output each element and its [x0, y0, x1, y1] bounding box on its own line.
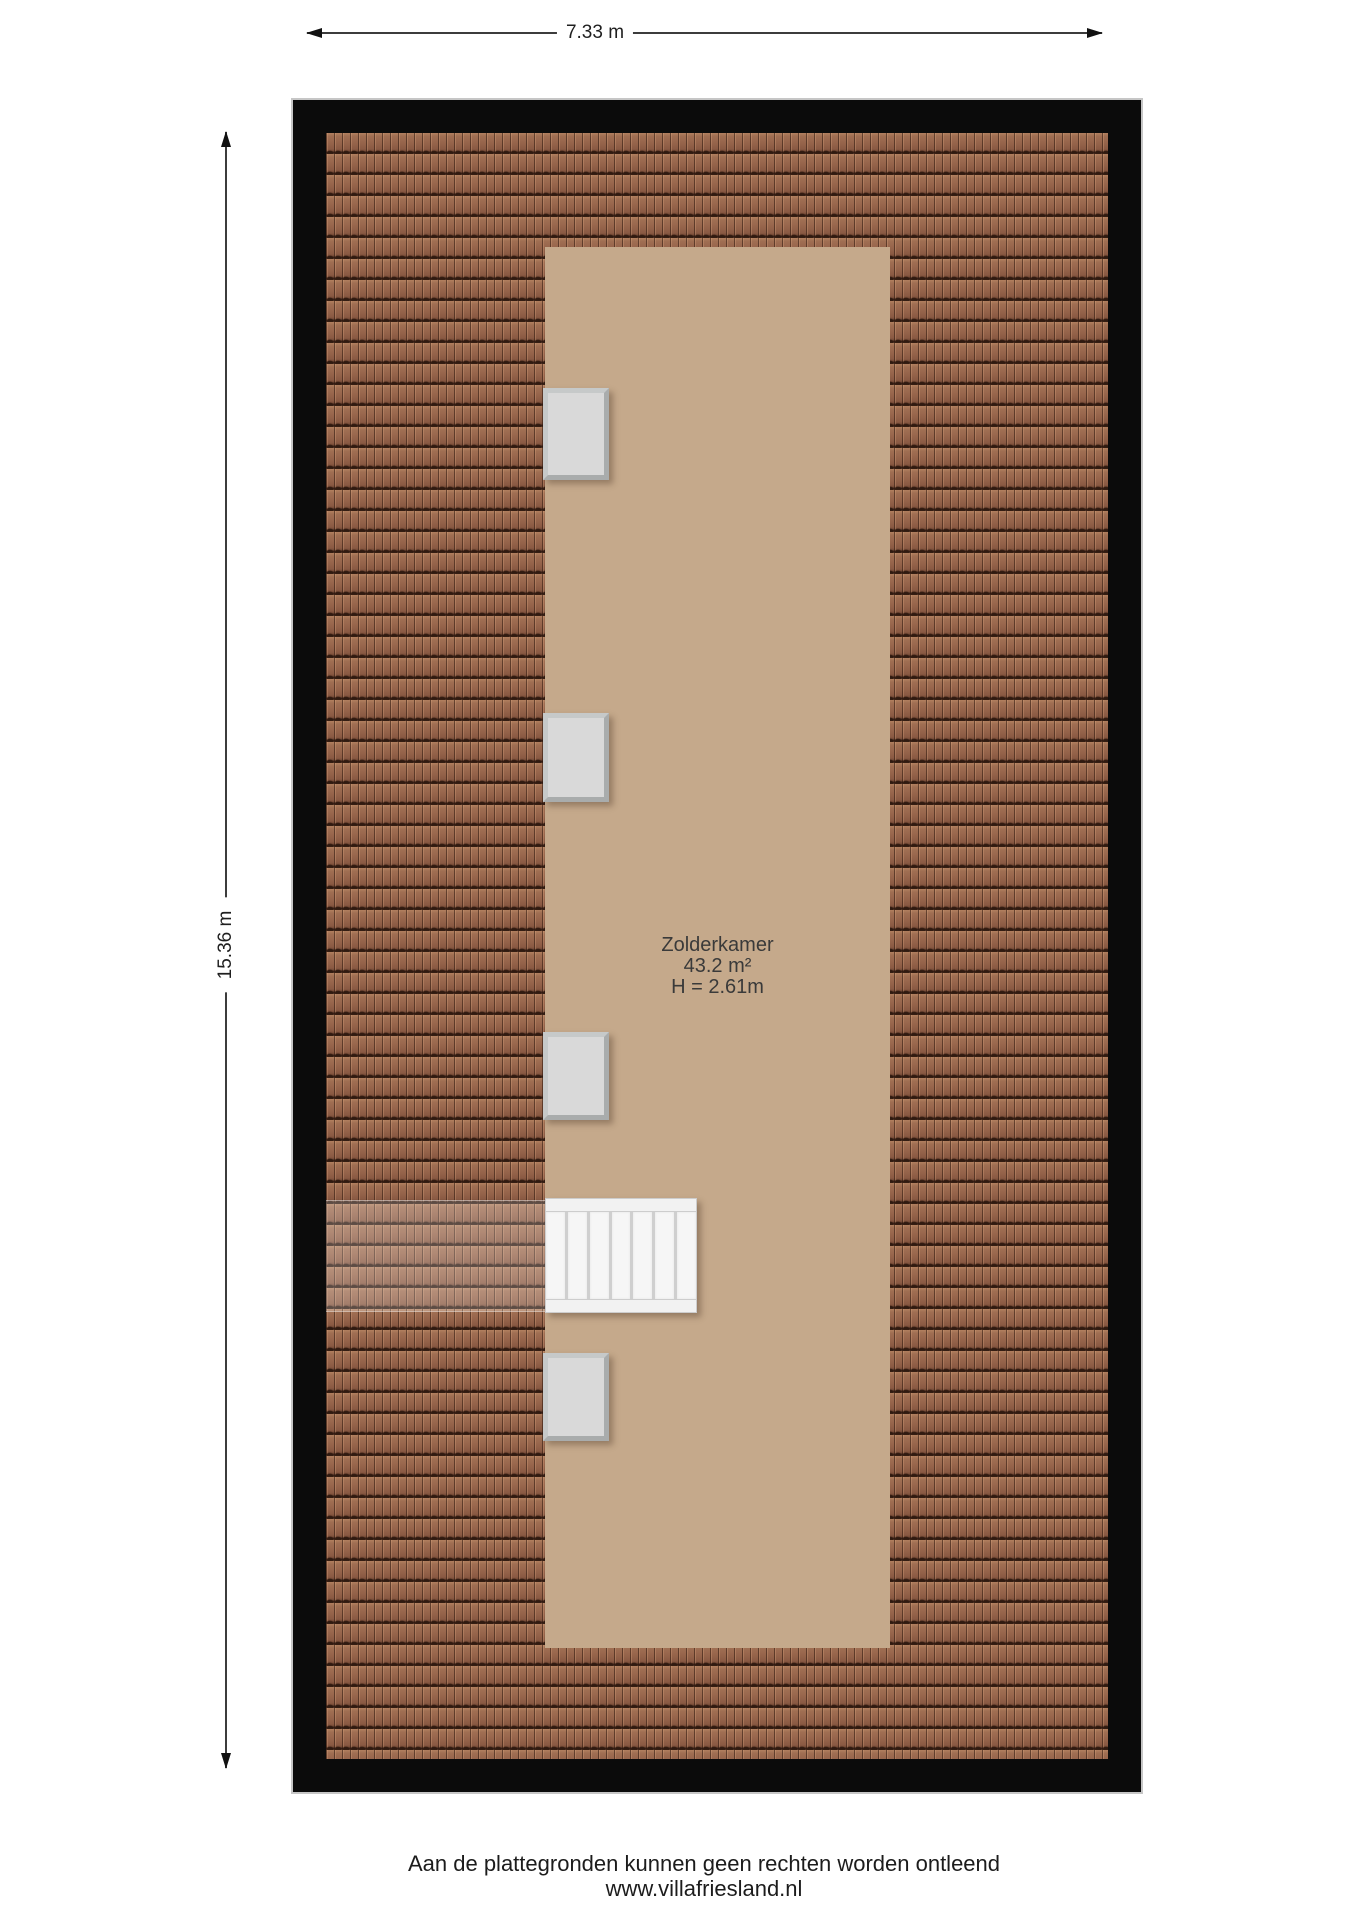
stair-tread	[655, 1212, 674, 1299]
arrow-down-icon	[221, 1753, 231, 1769]
footer-website: www.villafriesland.nl	[408, 1876, 1000, 1901]
arrow-up-icon	[221, 131, 231, 147]
stair-top-rail	[545, 1198, 697, 1212]
height-dimension-label: 15.36 m	[216, 898, 236, 993]
room-ceiling-height: H = 2.61m	[545, 977, 890, 998]
room-name: Zolderkamer	[545, 935, 890, 956]
height-dimension: 15.36 m	[225, 132, 227, 1768]
floorplan-page: 7.33 m 15.36 m Zolderkamer 43.2 m² H = 2…	[0, 0, 1358, 1920]
room-label: Zolderkamer 43.2 m² H = 2.61m	[545, 935, 890, 998]
skylight-window	[543, 1032, 609, 1120]
arrow-right-icon	[1087, 28, 1103, 38]
footer: Aan de plattegronden kunnen geen rechten…	[408, 1851, 1000, 1901]
skylight-window	[543, 388, 609, 480]
width-dimension-label: 7.33 m	[557, 23, 633, 43]
skylight-window	[543, 1353, 609, 1441]
arrow-left-icon	[306, 28, 322, 38]
width-dimension-line	[307, 32, 1102, 34]
stair-treads	[545, 1212, 697, 1299]
stair-opening-overlay	[326, 1200, 545, 1312]
floorplan: Zolderkamer 43.2 m² H = 2.61m	[293, 100, 1141, 1792]
skylight-window	[543, 713, 609, 802]
stair-tread	[546, 1212, 565, 1299]
stair-tread	[677, 1212, 696, 1299]
stair-tread	[590, 1212, 609, 1299]
room-area: 43.2 m²	[545, 956, 890, 977]
footer-disclaimer: Aan de plattegronden kunnen geen rechten…	[408, 1851, 1000, 1876]
stair-bottom-rail	[545, 1299, 697, 1313]
width-dimension: 7.33 m	[307, 24, 1102, 42]
staircase	[545, 1198, 697, 1313]
stair-tread	[633, 1212, 652, 1299]
stair-tread	[568, 1212, 587, 1299]
stair-tread	[612, 1212, 631, 1299]
